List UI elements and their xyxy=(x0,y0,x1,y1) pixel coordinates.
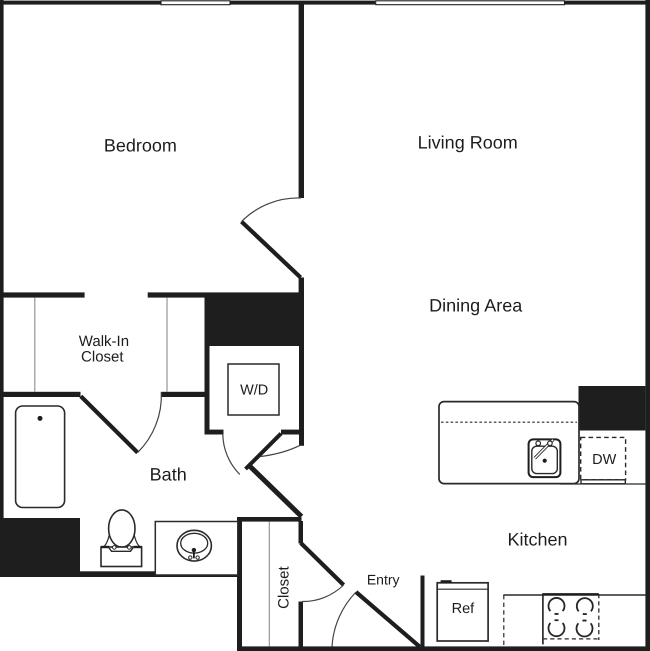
svg-text:Dining Area: Dining Area xyxy=(429,295,523,315)
svg-text:Entry: Entry xyxy=(367,572,400,588)
svg-text:W/D: W/D xyxy=(240,383,268,399)
svg-text:Bedroom: Bedroom xyxy=(104,135,177,155)
svg-text:Ref: Ref xyxy=(452,601,476,617)
svg-text:Kitchen: Kitchen xyxy=(507,529,567,549)
svg-text:Living Room: Living Room xyxy=(418,132,518,152)
svg-text:DW: DW xyxy=(592,452,616,468)
svg-text:Closet: Closet xyxy=(81,348,124,365)
svg-text:Bath: Bath xyxy=(150,465,187,485)
svg-text:Closet: Closet xyxy=(276,566,293,609)
